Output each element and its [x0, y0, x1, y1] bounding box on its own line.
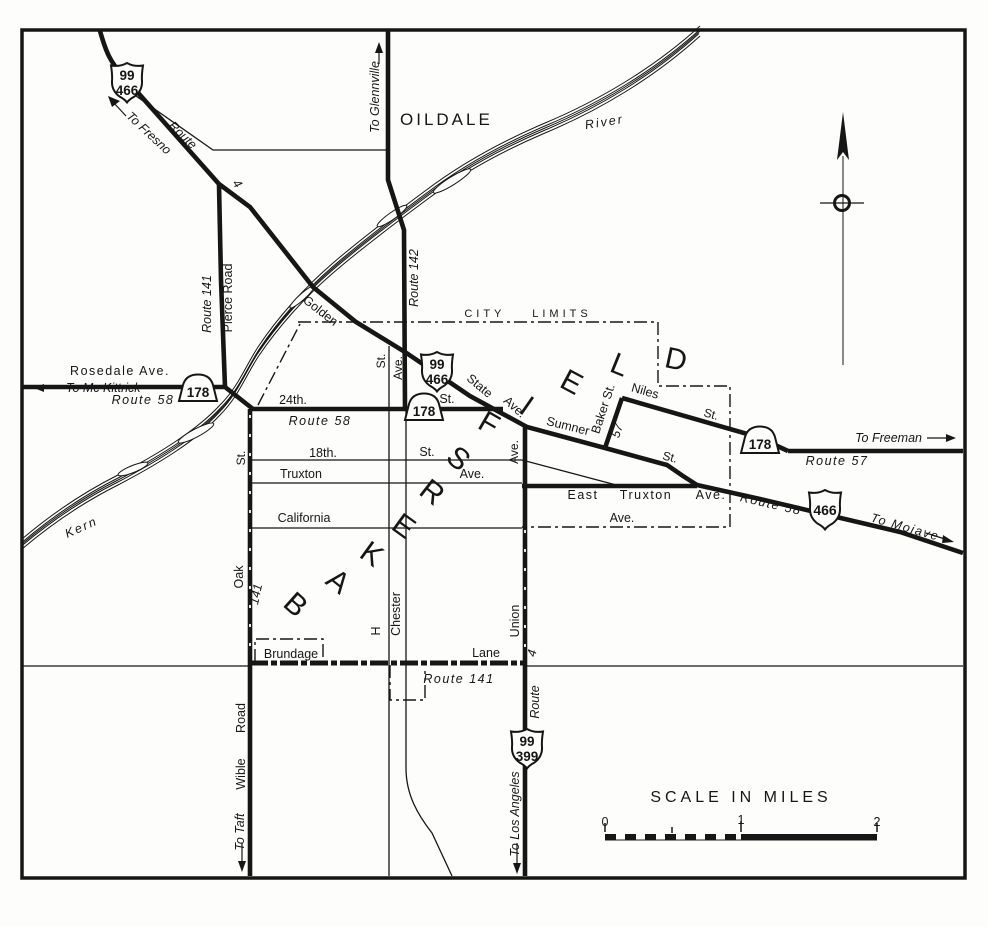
sr178-shield-24th: 178 — [405, 394, 443, 421]
bakersfield-road-map: B A K E R S F I E L D OILDALE River Kern… — [0, 0, 988, 927]
route-label-57: Route 57 — [806, 454, 869, 468]
shield-number: 178 — [749, 437, 772, 452]
river-label-river: River — [584, 112, 625, 132]
shield-number-top: 99 — [119, 68, 134, 83]
dest-label-fresno: To Fresno — [124, 109, 174, 157]
taft-arrow-icon — [238, 861, 246, 872]
river-label-kern: Kern — [63, 514, 100, 541]
route-label-4-nw: 4 — [230, 177, 245, 191]
shield-number-top: 99 — [519, 734, 534, 749]
us-shield-99-466-central: 99 466 — [421, 352, 453, 392]
los-angeles-arrow-icon — [513, 863, 521, 874]
glennville-arrow-icon — [375, 42, 383, 53]
street-label-california-ave-suffix: Ave. — [610, 511, 635, 525]
dest-label-freeman: To Freeman — [855, 431, 922, 445]
us-shield-466-east: 466 — [809, 490, 841, 530]
city-limits-label: CITY LIMITS — [464, 308, 591, 320]
route-label-142: Route 142 — [407, 249, 421, 307]
street-label-truxton-ave-suffix: Ave. — [460, 467, 485, 481]
street-label-chester: Chester — [389, 592, 403, 636]
shield-number-bottom: 466 — [426, 372, 449, 387]
street-label-lane: Lane — [472, 646, 500, 660]
street-label-east-truxton-ave-suffix: Ave. — [696, 488, 727, 502]
scale-bar: SCALE IN MILES 0 1 2 — [602, 789, 881, 840]
us-shield-99-466-nw: 99 466 — [111, 63, 143, 103]
city-letter: B — [277, 586, 314, 624]
street-label-18th: 18th. — [309, 446, 337, 460]
route-label-141-legislative: 141 — [247, 583, 265, 606]
street-label-pierce-road: Pierce Road — [221, 264, 235, 333]
minor-roads — [22, 96, 963, 876]
street-label-union-ave-suffix: Ave. — [507, 440, 521, 464]
route-label-route-south: Route — [528, 685, 542, 718]
route-label-141-south: Route 141 — [423, 672, 494, 686]
scale-bar-title: SCALE IN MILES — [650, 789, 831, 806]
street-label-wible-road-suffix: Road — [234, 703, 248, 733]
city-letter: A — [320, 562, 356, 600]
street-label-chester-ave-suffix: Ave. — [391, 356, 405, 380]
dest-label-glennville: To Glennville — [368, 61, 382, 133]
route-label-141-north: Route 141 — [200, 275, 214, 333]
city-letter: E — [386, 507, 422, 545]
place-label-oildale: OILDALE — [400, 110, 493, 129]
sr178-shield-niles: 178 — [741, 427, 779, 454]
street-label-18th-st-suffix: St. — [419, 445, 434, 459]
north-arrow — [820, 112, 864, 365]
kern-river — [21, 26, 701, 549]
route-label-4-union: 4 — [525, 648, 540, 658]
street-label-oak: Oak — [232, 565, 246, 589]
dest-label-taft: To Taft — [233, 813, 247, 851]
map-canvas: B A K E R S F I E L D OILDALE River Kern… — [0, 0, 988, 927]
shield-number-top: 99 — [429, 357, 444, 372]
city-letter: E — [555, 363, 588, 402]
street-label-h: H — [369, 626, 383, 635]
shield-number: 178 — [413, 404, 436, 419]
dest-label-mojave: To Mojave — [869, 511, 941, 544]
street-label-golden: Golden — [300, 293, 340, 329]
street-label-wible: Wible — [234, 758, 248, 789]
north-arrow-needle — [837, 112, 849, 160]
route-label-58-west: Route 58 — [112, 393, 175, 407]
mojave-arrow-icon — [942, 535, 954, 543]
city-letter: R — [413, 473, 450, 512]
street-label-truxton: Truxton — [280, 467, 322, 481]
route-label-57-legislative: 57 — [608, 421, 626, 440]
shield-number-bottom: 399 — [516, 749, 539, 764]
route-label-58-24th: Route 58 — [289, 414, 352, 428]
street-label-24th-st-suffix: St. — [439, 392, 454, 406]
freeman-arrow-icon — [946, 434, 956, 442]
street-label-california: California — [278, 511, 331, 525]
city-letter: D — [662, 341, 690, 378]
shield-number: 178 — [187, 385, 210, 400]
street-label-oak-st-suffix: St. — [234, 451, 248, 466]
street-label-east: East — [567, 488, 598, 502]
street-label-brundage: Brundage — [264, 647, 318, 661]
city-letter: K — [354, 535, 390, 573]
street-label-24th: 24th. — [279, 393, 307, 407]
street-label-niles: Niles — [630, 381, 661, 402]
route-label-58-east: Route 58 — [739, 490, 803, 518]
shield-number-bottom: 466 — [116, 83, 139, 98]
dest-label-los-angeles: To Los Angeles — [508, 771, 522, 856]
shield-number: 466 — [813, 502, 837, 518]
street-label-truxton-east: Truxton — [620, 488, 672, 502]
sr178-shield-rosedale: 178 — [179, 375, 217, 402]
street-label-rosedale: Rosedale Ave. — [70, 364, 170, 378]
street-label-h-st-suffix: St. — [374, 354, 388, 369]
city-letter: L — [606, 347, 634, 384]
us-shield-99-399-south: 99 399 — [511, 729, 543, 769]
street-label-union: Union — [508, 605, 522, 638]
